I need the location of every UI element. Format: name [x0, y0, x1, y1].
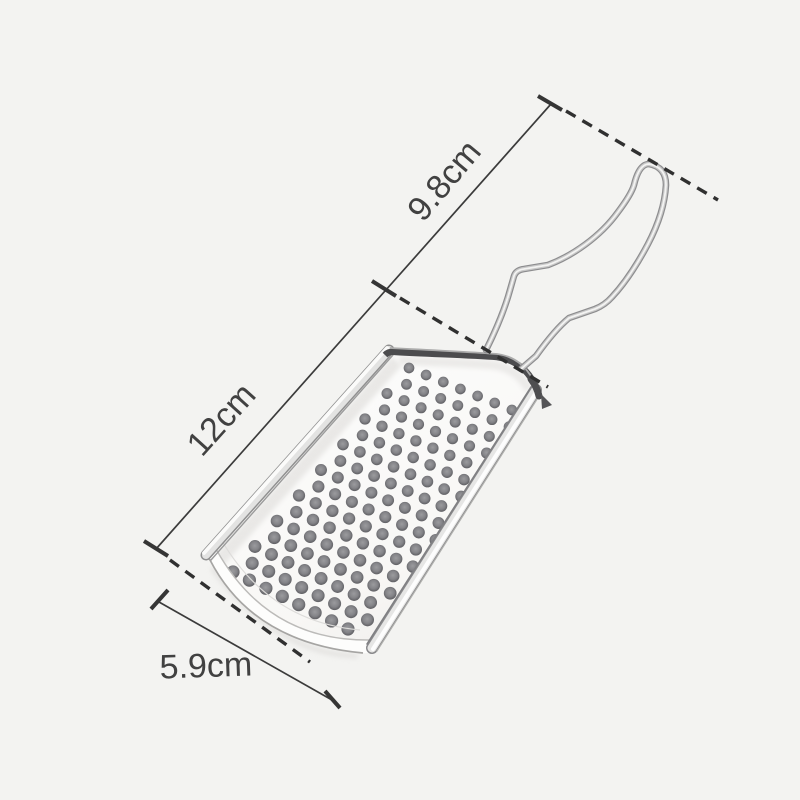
svg-text:5.9cm: 5.9cm: [159, 645, 253, 686]
